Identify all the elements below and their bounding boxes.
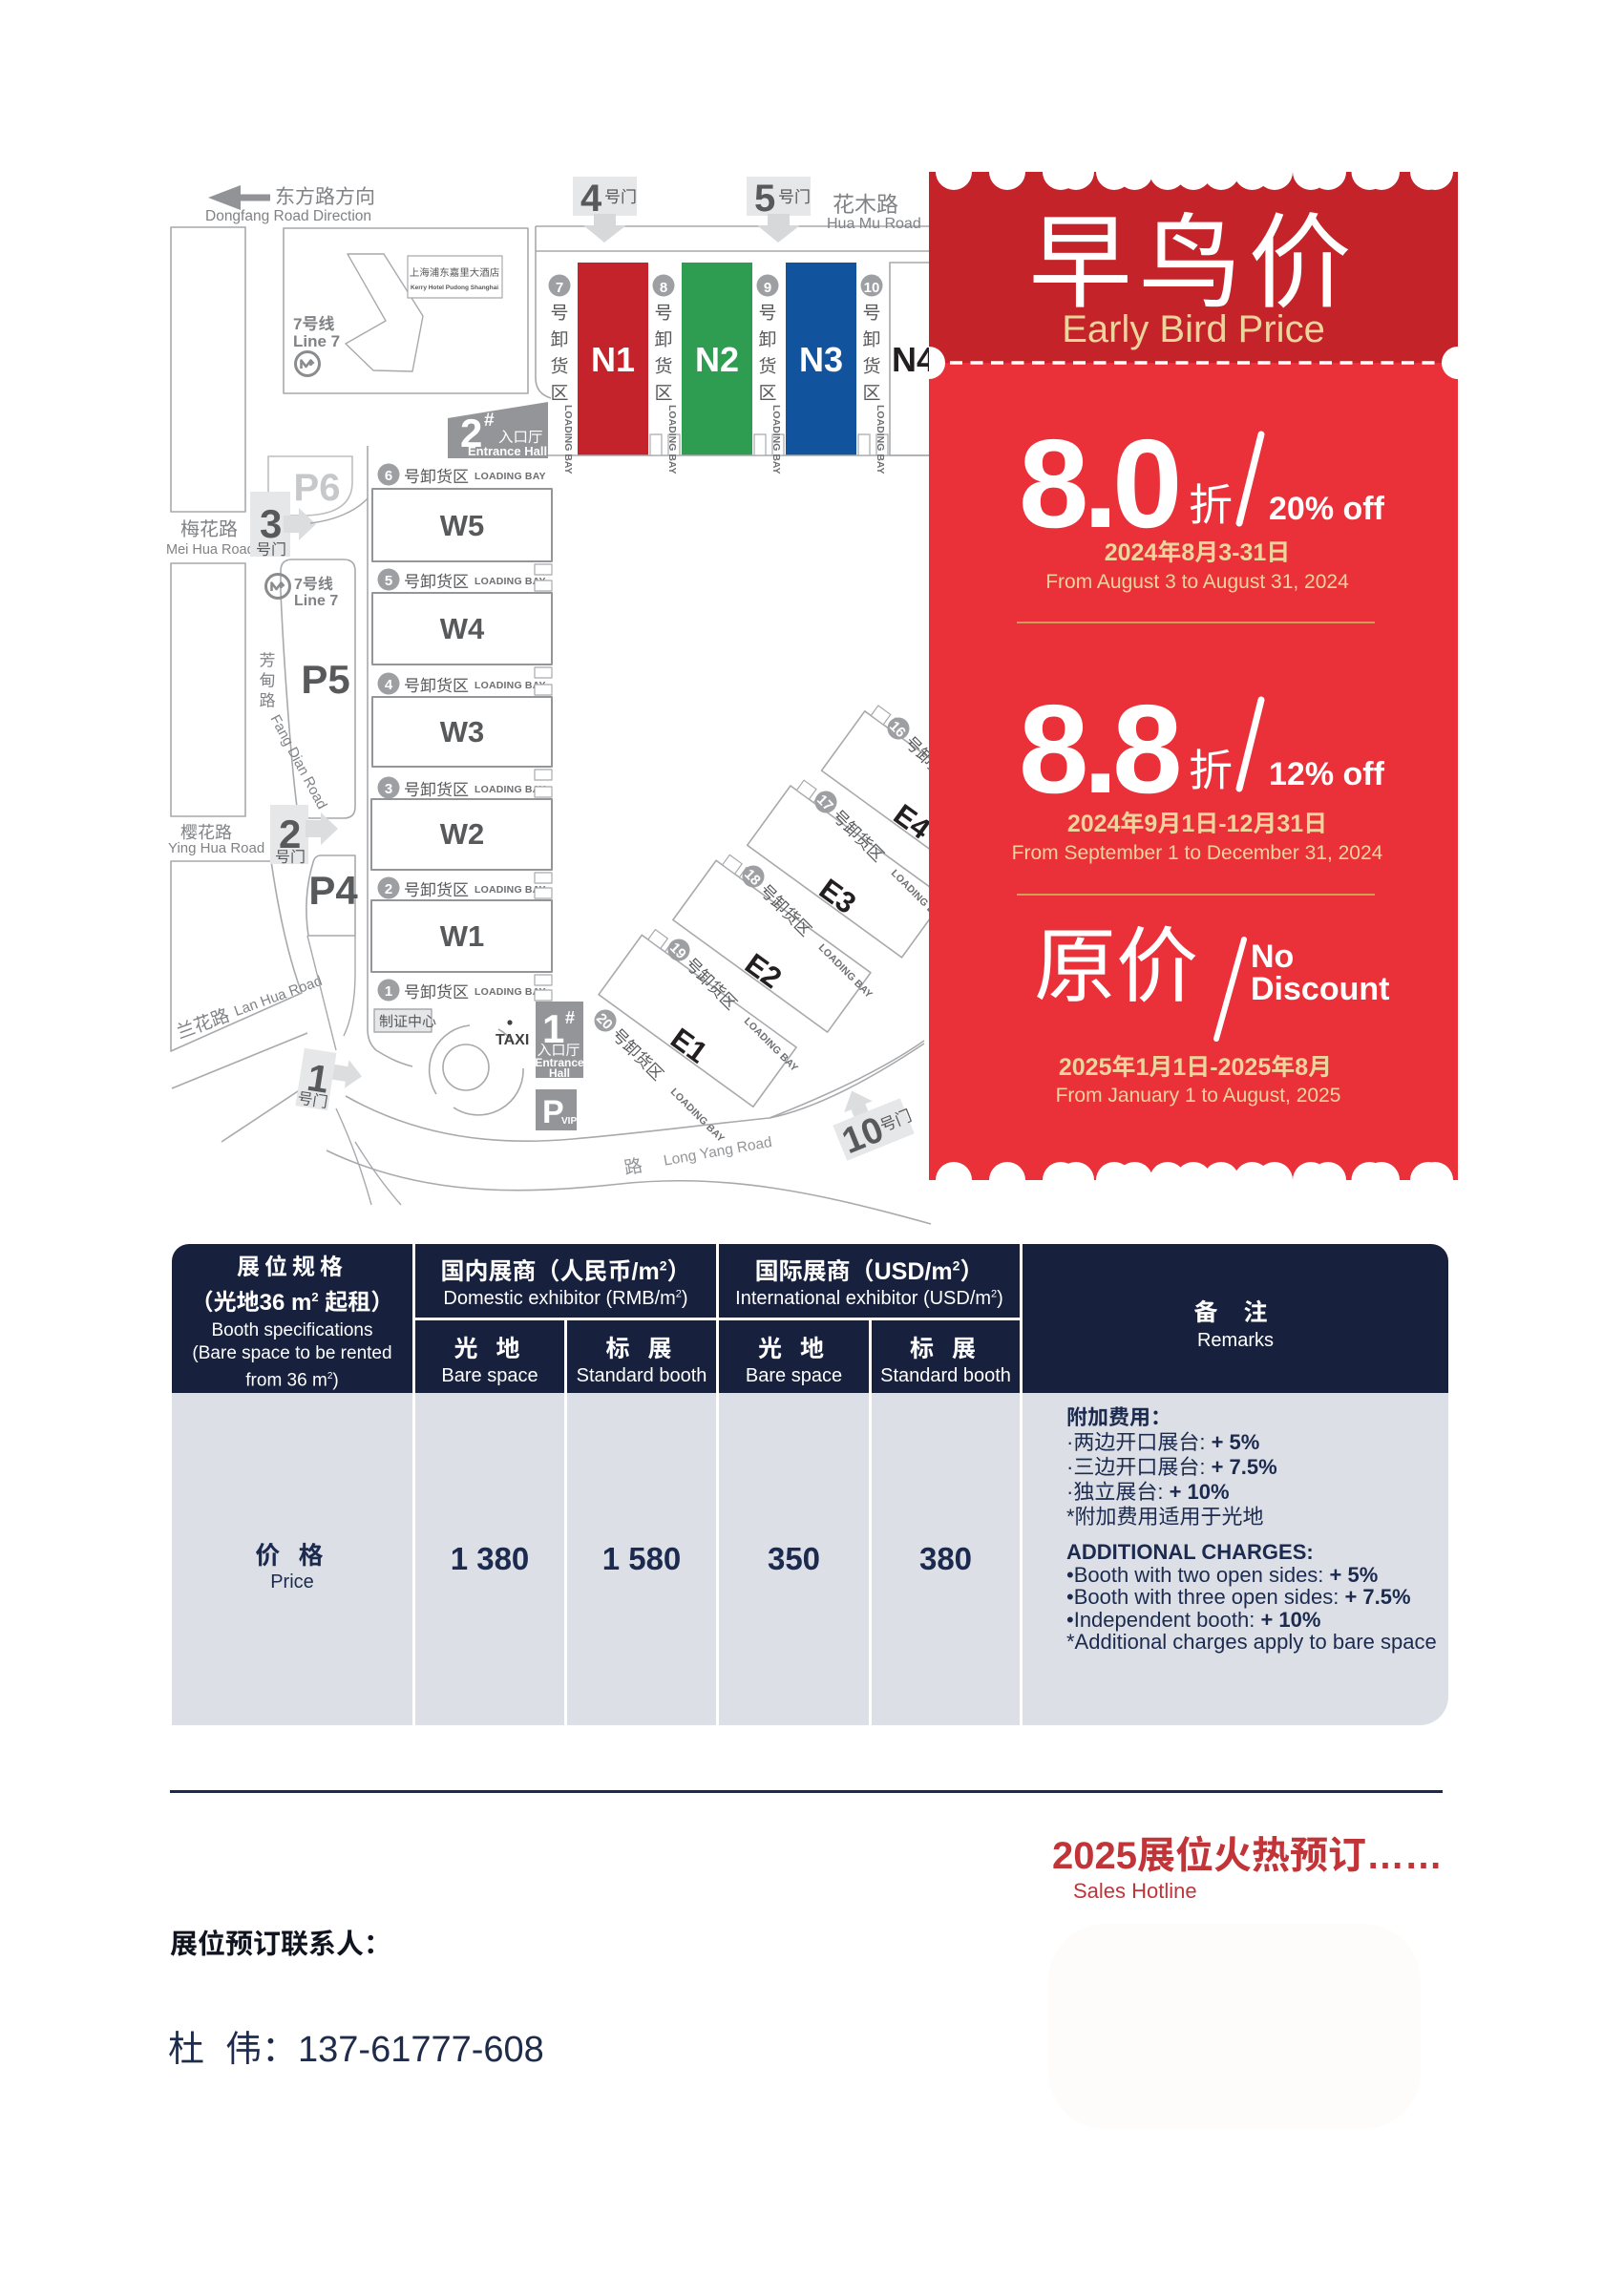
svg-text:Entrance Hall: Entrance Hall [468, 444, 547, 458]
svg-text:货: 货 [862, 356, 880, 377]
svg-text:P6: P6 [294, 467, 341, 509]
svg-text:Line 7: Line 7 [293, 332, 340, 350]
svg-text:Discount: Discount [1251, 971, 1389, 1007]
svg-text:LOADING BAY: LOADING BAY [562, 405, 574, 475]
svg-text:3: 3 [260, 501, 282, 546]
svg-text:N2: N2 [695, 340, 739, 379]
svg-text:W5: W5 [440, 509, 485, 542]
svg-text:卸: 卸 [758, 329, 776, 350]
svg-text:From January 1 to August, 2025: From January 1 to August, 2025 [1056, 1085, 1341, 1107]
svg-text:卸: 卸 [654, 329, 672, 350]
svg-text:LOADING BAY: LOADING BAY [875, 405, 886, 475]
svg-text:号: 号 [550, 304, 568, 324]
svg-text:号卸货区: 号卸货区 [404, 573, 469, 591]
svg-text:Hall: Hall [549, 1066, 570, 1080]
svg-text:W2: W2 [440, 817, 485, 851]
svg-text:号卸货区: 号卸货区 [404, 677, 469, 695]
svg-text:花木路: 花木路 [833, 192, 898, 217]
svg-text:5: 5 [754, 178, 775, 220]
svg-text:From August 3 to August 31, 20: From August 3 to August 31, 2024 [1045, 571, 1349, 593]
svg-text:芳甸路: 芳甸路 [257, 651, 276, 711]
svg-text:号卸货区: 号卸货区 [404, 881, 469, 899]
svg-text:2024年9月1日-12月31日: 2024年9月1日-12月31日 [1067, 811, 1327, 837]
svg-text:路: 路 [622, 1156, 643, 1179]
svg-text:Mei Hua Road: Mei Hua Road [166, 542, 255, 558]
svg-text:货: 货 [654, 356, 672, 377]
svg-text:号卸货区: 号卸货区 [404, 983, 469, 1002]
svg-text:Early Bird Price: Early Bird Price [1062, 308, 1325, 350]
svg-text:20% off: 20% off [1269, 491, 1385, 527]
svg-text:上海浦东嘉里大酒店: 上海浦东嘉里大酒店 [410, 267, 500, 279]
svg-text:Hua Mu Road: Hua Mu Road [827, 216, 921, 232]
svg-text:12% off: 12% off [1269, 756, 1385, 792]
svg-text:货: 货 [758, 356, 776, 377]
svg-text:W3: W3 [440, 715, 485, 749]
svg-text:No: No [1251, 939, 1294, 975]
svg-text:兰花路: 兰花路 [175, 1005, 233, 1043]
svg-text:N3: N3 [799, 340, 843, 379]
svg-text:LOADING BAY: LOADING BAY [475, 471, 546, 482]
svg-text:东方路方向: 东方路方向 [275, 186, 375, 208]
svg-text:号门: 号门 [256, 541, 286, 559]
svg-text:Lan Hua Road: Lan Hua Road [232, 973, 325, 1020]
svg-text:3: 3 [385, 781, 392, 797]
svg-text:W1: W1 [440, 919, 485, 953]
svg-text:折: 折 [1189, 480, 1233, 530]
svg-text:2025年1月1日-2025年8月: 2025年1月1日-2025年8月 [1059, 1054, 1332, 1081]
svg-text:P5: P5 [301, 657, 349, 702]
svg-text:号门: 号门 [275, 849, 306, 866]
svg-text:10: 10 [864, 280, 880, 296]
svg-text:号门: 号门 [604, 188, 637, 206]
svg-text:VIP: VIP [561, 1116, 577, 1127]
svg-text:TAXI: TAXI [496, 1032, 529, 1048]
svg-text:LOADING BAY: LOADING BAY [770, 405, 782, 475]
svg-text:7号线: 7号线 [294, 576, 333, 593]
svg-text:6: 6 [385, 468, 392, 484]
svg-text:号: 号 [758, 304, 776, 324]
svg-text:8.8: 8.8 [1019, 679, 1179, 819]
svg-text:2: 2 [385, 881, 392, 897]
svg-text:卸: 卸 [550, 329, 568, 350]
svg-text:1: 1 [385, 983, 392, 1000]
svg-text:区: 区 [550, 384, 568, 404]
svg-text:P4: P4 [308, 868, 358, 913]
svg-text:早鸟价: 早鸟价 [1028, 205, 1358, 321]
svg-text:樱花路: 樱花路 [180, 823, 232, 842]
svg-text:2024年8月3-31日: 2024年8月3-31日 [1105, 539, 1291, 566]
svg-text:N1: N1 [591, 340, 635, 379]
svg-text:Dongfang Road Direction: Dongfang Road Direction [205, 208, 371, 224]
svg-text:号门: 号门 [778, 188, 811, 206]
svg-text:Kerry Hotel Pudong Shanghai: Kerry Hotel Pudong Shanghai [411, 285, 498, 291]
svg-text:号: 号 [654, 304, 672, 324]
svg-text:号: 号 [862, 304, 880, 324]
svg-text:7号线: 7号线 [293, 315, 334, 333]
svg-text:8: 8 [660, 280, 667, 296]
svg-text:Ying Hua Road: Ying Hua Road [168, 840, 264, 856]
svg-text:号卸货区: 号卸货区 [404, 468, 469, 486]
svg-text:From September 1 to December 3: From September 1 to December 31, 2024 [1012, 842, 1383, 864]
svg-text:5: 5 [385, 573, 392, 589]
svg-text:Line 7: Line 7 [294, 593, 338, 609]
svg-text:9: 9 [764, 280, 771, 296]
svg-text:折: 折 [1189, 746, 1233, 795]
svg-text:原价: 原价 [1034, 921, 1198, 1013]
svg-text:W4: W4 [440, 612, 485, 645]
svg-text:7: 7 [556, 280, 563, 296]
svg-text:#: # [565, 1008, 575, 1027]
svg-text:号卸货区: 号卸货区 [404, 781, 469, 799]
svg-text:LOADING BAY: LOADING BAY [668, 1086, 727, 1145]
svg-text:4: 4 [385, 677, 393, 693]
svg-text:8.0: 8.0 [1019, 413, 1177, 554]
svg-text:梅花路: 梅花路 [180, 519, 238, 540]
svg-text:区: 区 [862, 384, 880, 404]
svg-text:4: 4 [580, 178, 602, 220]
svg-text:制证中心: 制证中心 [379, 1014, 436, 1030]
svg-text:区: 区 [758, 384, 776, 404]
svg-text:货: 货 [550, 356, 568, 377]
svg-text:LOADING BAY: LOADING BAY [666, 405, 678, 475]
svg-text:区: 区 [654, 384, 672, 404]
svg-text:卸: 卸 [862, 329, 880, 350]
svg-text:#: # [484, 411, 495, 431]
